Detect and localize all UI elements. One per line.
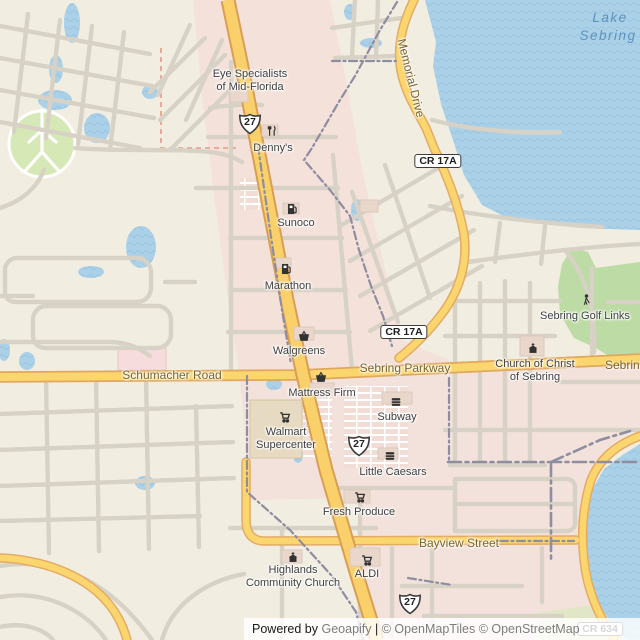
road-label-sebring-parkway: Sebring Parkway (360, 361, 451, 375)
poi-label-dennys: Denny's (253, 142, 292, 155)
water-label-sebring: Sebring (579, 28, 636, 43)
attribution-link-openmaptiles-osm[interactable]: © OpenMapTiles © OpenStreetMap (382, 622, 580, 636)
attribution-link-geoapify[interactable]: Geoapify (321, 622, 371, 636)
cart-icon (361, 554, 373, 566)
cart-icon (279, 411, 291, 423)
water-label-lake: Lake (592, 10, 627, 25)
church-icon (527, 342, 539, 354)
poi-label-highlands-community-church: HighlandsCommunity Church (246, 564, 340, 590)
poi-label-mattress-firm: Mattress Firm (288, 387, 355, 400)
attribution-separator: | (372, 622, 382, 636)
poi-label-walmart: WalmartSupercenter (256, 426, 316, 452)
road-label-schumacher-road: Schumacher Road (122, 368, 221, 382)
fuel-icon (287, 203, 299, 215)
golfer-icon (580, 294, 592, 306)
fast-food-icon (384, 450, 396, 462)
us-27-shield: 27 (347, 435, 371, 457)
poi-label-eye-specialists: Eye Specialistsof Mid-Florida (213, 68, 288, 94)
us-27-shield: 27 (238, 113, 262, 135)
restaurant-icon (266, 125, 278, 137)
road-label-bayview-street: Bayview Street (419, 536, 499, 550)
fuel-icon (281, 263, 293, 275)
poi-label-aldi: ALDI (355, 568, 379, 581)
attribution-powered-by: Powered by (252, 622, 321, 636)
poi-label-church-of-christ: Church of Christof Sebring (495, 358, 574, 384)
attribution-bar: Powered by Geoapify | © OpenMapTiles © O… (244, 618, 640, 640)
poi-label-sebring-golf-links: Sebring Golf Links (540, 310, 630, 323)
cr-17a-shield: CR 17A (380, 325, 427, 339)
poi-label-walgreens: Walgreens (273, 345, 325, 358)
road-label-sebring-parkway-edge: Sebring Parkway (605, 356, 640, 372)
poi-label-marathon: Marathon (265, 280, 311, 293)
church-icon (287, 551, 299, 563)
poi-label-little-caesars: Little Caesars (359, 466, 426, 479)
shop-basket-icon (315, 371, 327, 383)
shop-basket-icon (298, 330, 310, 342)
fast-food-icon (390, 396, 402, 408)
map-canvas[interactable]: Eye Specialistsof Mid-Florida Denny's Su… (0, 0, 640, 640)
us-27-shield: 27 (398, 593, 422, 615)
cr-17a-shield: CR 17A (414, 154, 461, 168)
poi-label-fresh-produce: Fresh Produce (323, 506, 395, 519)
cart-icon (354, 491, 366, 503)
poi-label-sunoco: Sunoco (277, 217, 314, 230)
poi-label-subway: Subway (377, 411, 416, 424)
